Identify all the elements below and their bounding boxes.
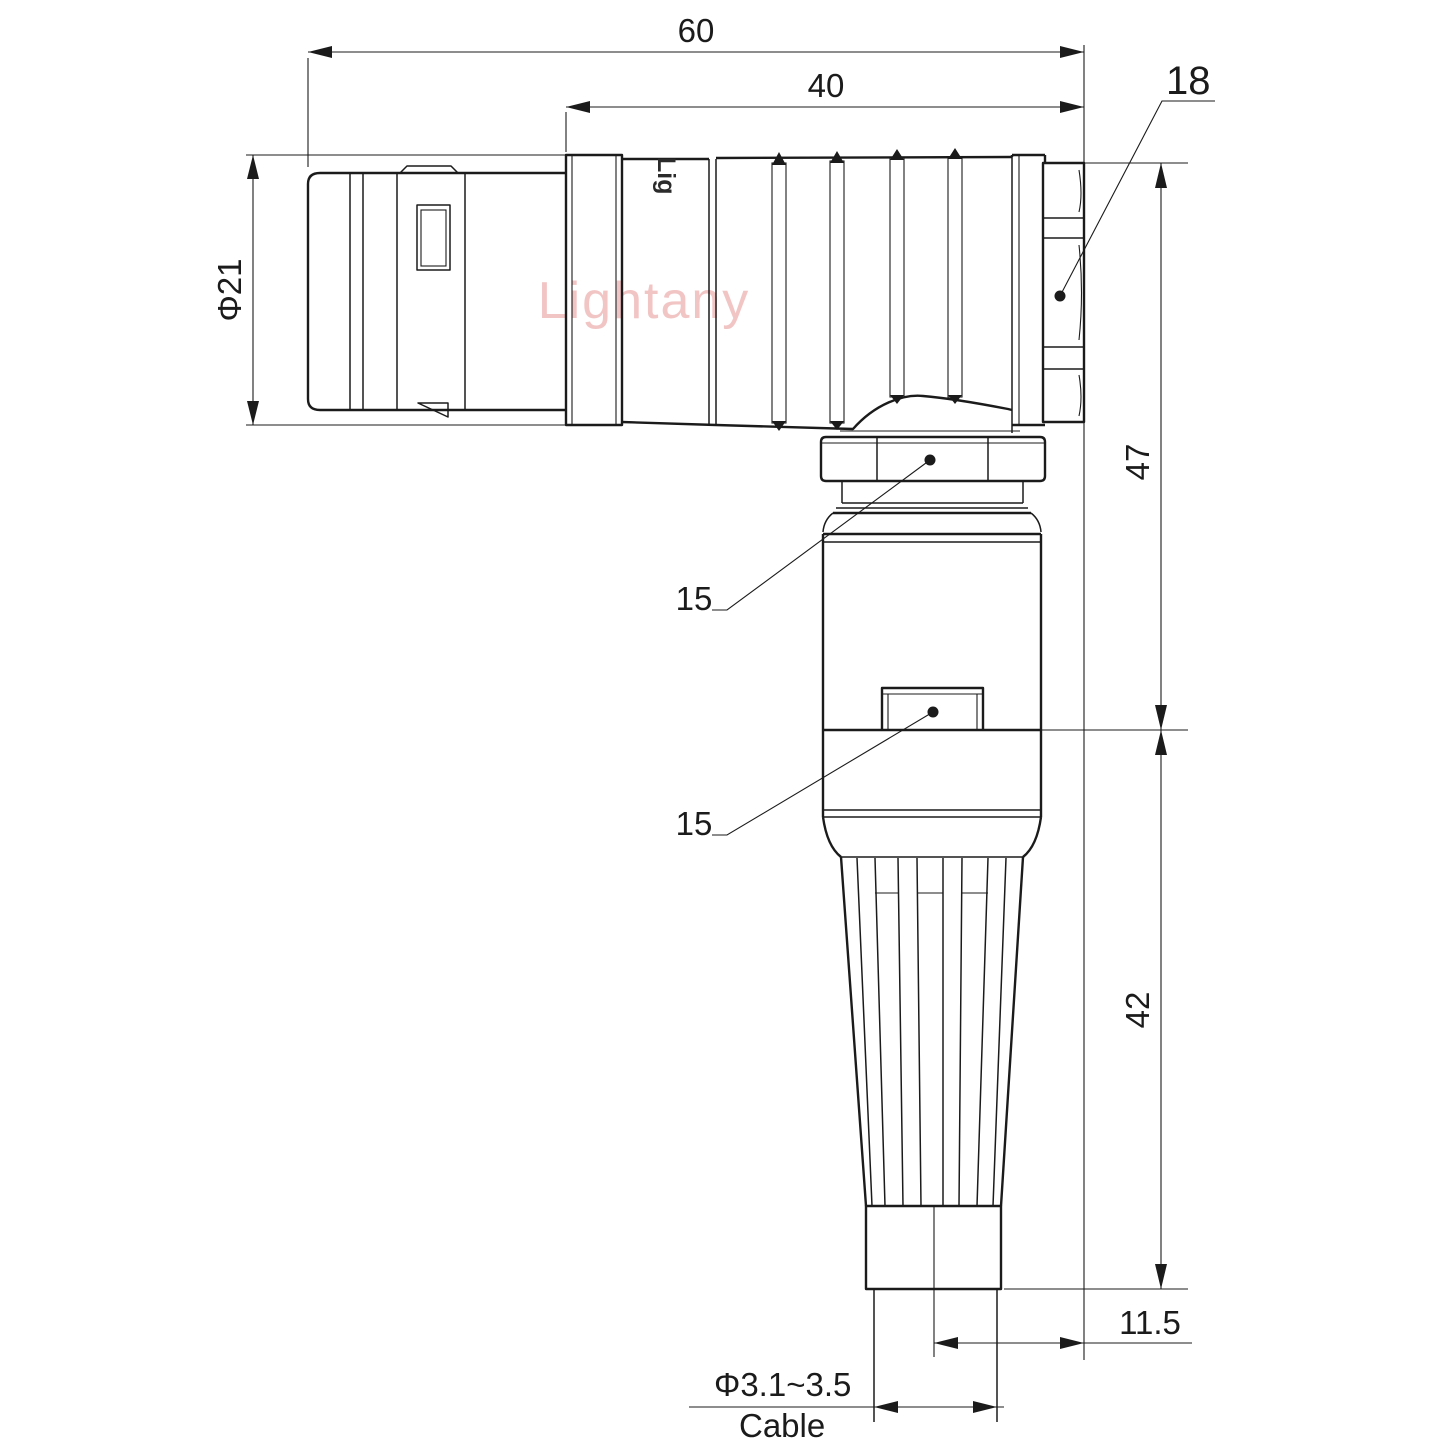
dim-42-label: 42: [1119, 992, 1156, 1029]
dim-18-label: 18: [1166, 59, 1211, 103]
leader-dot: [928, 707, 939, 718]
dim-60-label: 60: [678, 12, 715, 49]
dim-40-label: 40: [808, 67, 845, 104]
leader-dot: [1055, 291, 1066, 302]
dimensions: 60 40 Φ21 18 4: [211, 12, 1215, 1440]
connector-technical-drawing: Lightany Lig: [0, 0, 1440, 1440]
gland-neck: [823, 481, 1041, 532]
dim-lower-height: 42: [1004, 730, 1188, 1289]
dim-11-5-label: 11.5: [1119, 1304, 1181, 1341]
end-collar: [1012, 155, 1045, 425]
callout-latch: 15: [676, 707, 939, 843]
knurl-band: [830, 151, 844, 430]
elbow-saddle-curve: [716, 396, 1012, 429]
connector-side-view: Lig: [308, 148, 1084, 1422]
dim-coupling-nut: 18: [1055, 59, 1216, 302]
dim-47-label: 47: [1119, 444, 1156, 481]
cable-caption: Cable: [739, 1407, 825, 1440]
dim-cable-diameter: Φ3.1~3.5 Cable: [689, 1366, 1004, 1440]
knurl-band: [948, 148, 962, 404]
watermark-text: Lightany: [538, 272, 751, 330]
dim-cable-offset: 11.5: [934, 1304, 1192, 1349]
knurled-boot: [716, 148, 1020, 433]
cable-extension-lines: [874, 1289, 997, 1422]
rear-sleeve: [308, 166, 566, 417]
dim-overall-length: 60: [308, 12, 1084, 167]
dim-15-gland-label: 15: [676, 580, 713, 617]
sleeve-window: [417, 205, 450, 270]
body-cylinder: [823, 534, 1041, 857]
dim-15-latch-label: 15: [676, 805, 713, 842]
knurl-band: [772, 152, 786, 431]
brand-print-text: Lig: [652, 157, 680, 195]
watermark: Lightany: [538, 272, 751, 330]
leader-dot: [925, 455, 936, 466]
cable-ferrule: [866, 1206, 1001, 1357]
dim-cable-diameter-label: Φ3.1~3.5: [714, 1366, 851, 1403]
dim-boot-length: 40: [566, 67, 1084, 152]
dim-upper-height: 47: [1084, 163, 1188, 730]
knurl-band: [890, 149, 904, 404]
dim-phi21-label: Φ21: [211, 258, 248, 321]
callout-gland-nut: 15: [676, 455, 936, 618]
technical-drawing-page: Lightany Lig: [0, 0, 1440, 1440]
strain-relief: [841, 857, 1023, 1206]
